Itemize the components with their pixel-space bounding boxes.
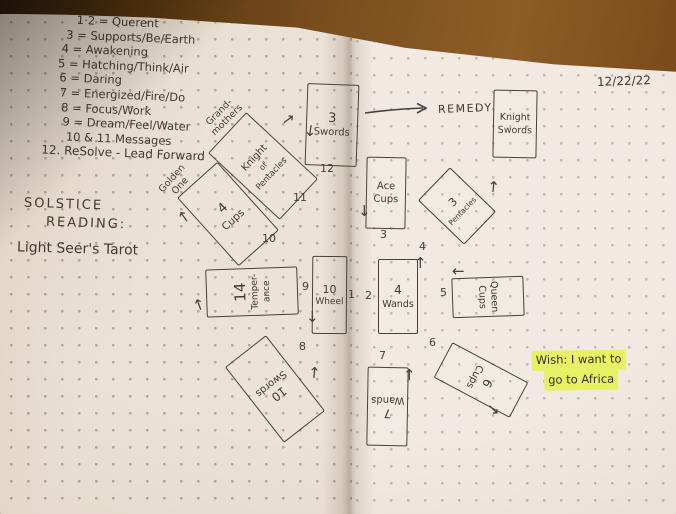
card-label: Knight of Pentacles (237, 140, 289, 193)
deck-name: Light Seer's Tarot (17, 239, 139, 258)
card-label: 4 Wands (382, 283, 414, 310)
card-rank: Ace (374, 180, 399, 192)
position-label-11: 11 (293, 191, 307, 204)
page-title-line1: SOLSTICE (24, 196, 104, 214)
position-label-10: 10 (262, 232, 276, 245)
wish-line: go to Africa (544, 370, 618, 391)
wish-line: Wish: I want to (532, 349, 626, 371)
card-label: 14 Temper- ance (231, 273, 274, 310)
position-label-7: 7 (379, 349, 386, 362)
position-label-2: 2 (365, 289, 372, 302)
card-rank: Queen (488, 281, 500, 313)
card-label: 7 Wands (371, 393, 405, 421)
card-rank: 7 (371, 406, 405, 421)
card-label: 4 Cups (209, 194, 248, 233)
card-suit: ance (261, 273, 273, 309)
up-arrow-icon: ↑ (403, 368, 416, 383)
card-suit: Temper- (250, 274, 262, 310)
card-4-wands: 4 Wands (378, 259, 418, 334)
card-suit: Swords (313, 127, 350, 140)
down-arrow-icon: ↓ (306, 310, 319, 325)
card-3-pentacles: 3 Pentacles (418, 167, 496, 245)
date-label: 12/22/22 (597, 73, 651, 89)
card-label: Ace Cups (373, 180, 398, 205)
card-label: 3 Pentacles (436, 185, 478, 227)
card-14-temperance: 14 Temper- ance (205, 266, 299, 317)
card-label: 10 Wheel (315, 282, 343, 307)
position-label-9: 9 (302, 280, 309, 293)
se-arrow-icon: ↘ (487, 402, 500, 417)
notebook-content: 1·2 = Querent 3 = Supports/Be/Earth 4 = … (0, 0, 676, 475)
position-label-1: 1 (348, 288, 355, 301)
position-label-5: 5 (440, 286, 447, 299)
card-ace-cups: Ace Cups (365, 157, 406, 230)
card-rank: 4 (382, 283, 414, 297)
remedy-label: REMEDY (438, 101, 493, 116)
position-label-4: 4 (419, 240, 426, 253)
down-arrow-icon: ↓ (358, 204, 371, 219)
position-label-6: 6 (429, 336, 436, 349)
ne-arrow-icon: ↗ (281, 111, 296, 128)
card-label: 6 Cups (463, 363, 499, 398)
card-10-swords-reversed: 10 Swords (225, 335, 325, 443)
card-suit: Cups (373, 193, 398, 205)
up-arrow-icon: ↑ (307, 365, 321, 381)
position-label-3: 3 (380, 228, 387, 241)
desk-photo: { "photo": { "date": "12/22/22" }, "key"… (0, 0, 676, 475)
down-arrow-icon: ↓ (303, 123, 318, 140)
spread-key-list: 1·2 = Querent 3 = Supports/Be/Earth 4 = … (41, 12, 211, 165)
card-knight-swords-remedy: Knight Swords (492, 90, 537, 159)
up-arrow-icon: ↑ (414, 256, 427, 271)
up-arrow-icon: ↑ (486, 179, 500, 195)
card-rank: 10 (315, 282, 343, 295)
card-label: 3 Swords (313, 110, 350, 140)
card-suit: Wands (371, 393, 404, 406)
card-label: Queen Cups (476, 281, 501, 313)
wish-note: Wish: I want to go to Africa (532, 349, 653, 391)
card-6-cups-reversed: 6 Cups (434, 342, 529, 418)
card-suit: Cups (476, 281, 488, 313)
card-label: 10 Swords (252, 367, 297, 411)
card-suit: Wheel (315, 297, 343, 308)
card-suit: Swords (498, 124, 533, 136)
position-label-12: 12 (320, 162, 334, 175)
card-queen-cups: Queen Cups (451, 276, 524, 318)
page-title-line2: READING: (46, 215, 127, 233)
card-rank: Knight (498, 112, 533, 124)
card-label: Knight Swords (498, 112, 533, 136)
card-rank: 14 (231, 274, 250, 311)
left-arrow-icon: ← (452, 264, 465, 279)
remedy-arrow-icon (363, 102, 433, 118)
card-suit: Wands (382, 299, 414, 310)
position-label-8: 8 (299, 340, 306, 353)
card-rank: 3 (314, 110, 351, 127)
